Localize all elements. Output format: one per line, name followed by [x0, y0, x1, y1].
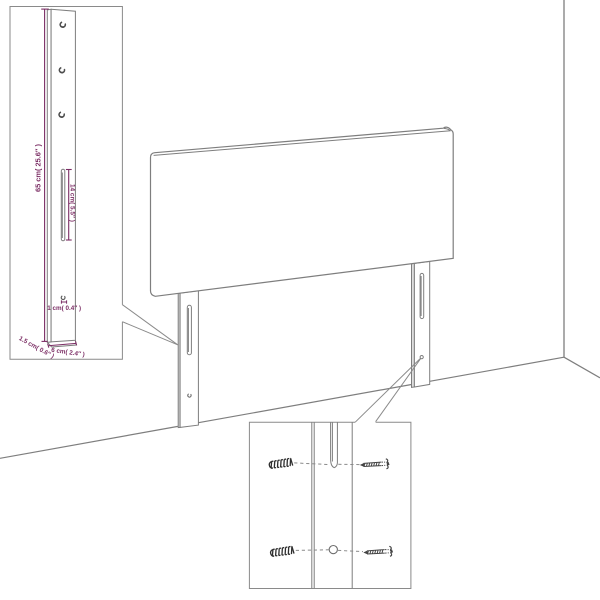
- svg-text:14 cm( 5.5″ ): 14 cm( 5.5″ ): [68, 184, 75, 222]
- svg-text:1 cm( 0.4″ ): 1 cm( 0.4″ ): [47, 305, 81, 312]
- svg-text:65 cm( 25.6″ ): 65 cm( 25.6″ ): [34, 144, 43, 192]
